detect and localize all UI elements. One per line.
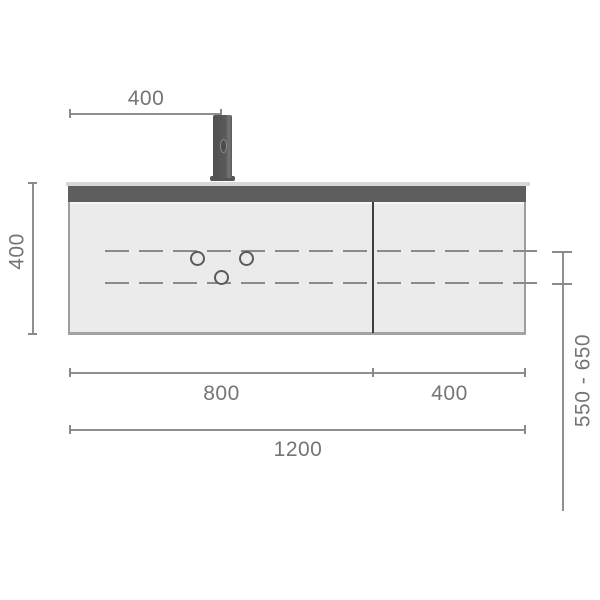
dashed-drain-line-lower [105, 282, 541, 284]
dim-tick [552, 283, 572, 285]
dim-line-section-widths [70, 372, 526, 374]
dim-label-left-section-width: 800 [70, 383, 373, 404]
cabinet-top-strip [68, 186, 526, 202]
dim-tick [28, 182, 37, 184]
drain-hole-circle [239, 251, 254, 266]
dim-label-right-section-width: 400 [373, 383, 526, 404]
dim-tick [28, 333, 37, 335]
dim-label-total-width: 1200 [70, 439, 526, 460]
dim-tick [372, 368, 374, 377]
dim-tick [69, 425, 71, 434]
dashed-drain-line-upper [105, 250, 541, 252]
faucet-handle-detail [220, 139, 227, 153]
dim-tick [69, 368, 71, 377]
dim-line-faucet-offset [70, 113, 222, 115]
dim-tick [524, 425, 526, 434]
dim-line-cabinet-height [32, 183, 34, 334]
dim-label-cabinet-height: 400 [7, 192, 28, 312]
drain-hole-circle [190, 251, 205, 266]
door-divider-line [372, 202, 374, 333]
cabinet-body [68, 202, 526, 335]
dim-line-total-width [70, 429, 526, 431]
dim-label-faucet-offset: 400 [70, 88, 222, 109]
technical-drawing-canvas: 400 400 550 - 650 800 400 1200 [0, 0, 600, 600]
dim-tick [552, 251, 572, 253]
dim-tick [524, 368, 526, 377]
drain-hole-circle [214, 270, 229, 285]
dim-tick [69, 109, 71, 118]
cabinet-body-highlight [70, 202, 524, 204]
dim-line-install-height [562, 252, 564, 511]
dim-label-install-height: 550 - 650 [573, 281, 594, 481]
